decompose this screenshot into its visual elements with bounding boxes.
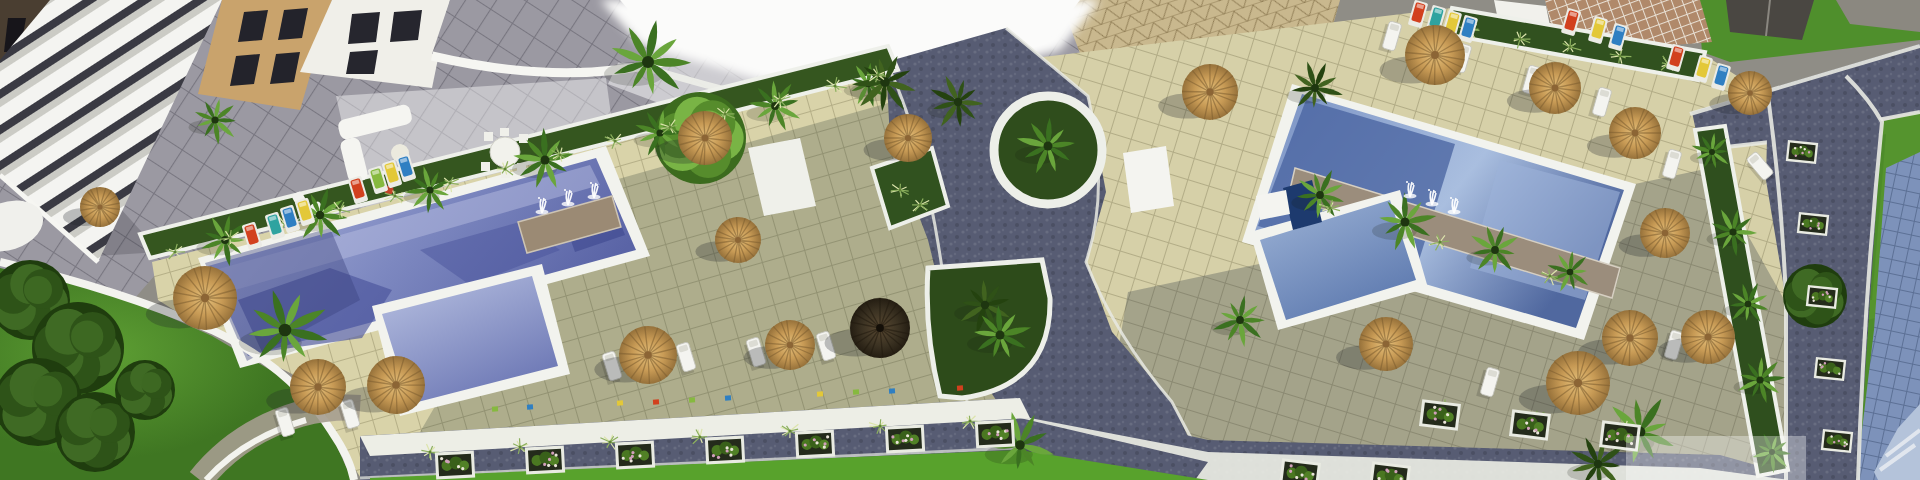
- chair: [484, 132, 493, 141]
- planter-box: [1822, 430, 1852, 452]
- chair: [500, 128, 509, 136]
- mini-flower-box: [689, 397, 695, 402]
- mini-flower-box: [889, 388, 895, 393]
- mini-flower-box: [957, 385, 963, 390]
- window: [390, 10, 422, 42]
- planter-box: [1815, 358, 1845, 380]
- planter-box: [796, 431, 833, 457]
- aerial-resort-render: [0, 0, 1920, 480]
- planter-box: [1281, 460, 1320, 480]
- mini-flower-box: [492, 406, 498, 411]
- planter-box: [526, 447, 563, 473]
- mini-flower-box: [527, 404, 533, 409]
- chair: [519, 134, 528, 143]
- planter-box: [436, 452, 473, 478]
- mini-flower-box: [817, 391, 823, 396]
- window: [346, 50, 378, 74]
- white-overlay-patch: [1626, 436, 1806, 480]
- planter-box: [886, 426, 923, 452]
- planter-box: [1787, 141, 1817, 163]
- mini-flower-box: [617, 400, 623, 405]
- tree-canopy: [115, 360, 175, 420]
- planter-box: [616, 442, 653, 468]
- planter-box: [976, 421, 1013, 447]
- planter-box: [1371, 463, 1410, 480]
- mini-flower-box: [725, 395, 731, 400]
- planter-box: [1421, 401, 1460, 429]
- render-canvas: [0, 0, 1920, 480]
- window: [348, 12, 380, 44]
- mini-flower-box: [853, 389, 859, 394]
- pool-shower-pad: [1123, 146, 1174, 213]
- dining-table: [490, 137, 520, 167]
- chair: [481, 162, 490, 171]
- planter-box: [706, 437, 743, 463]
- planter-box: [1798, 213, 1828, 235]
- planter-box: [1807, 286, 1837, 308]
- mini-flower-box: [653, 399, 659, 404]
- planter-box: [1511, 411, 1550, 439]
